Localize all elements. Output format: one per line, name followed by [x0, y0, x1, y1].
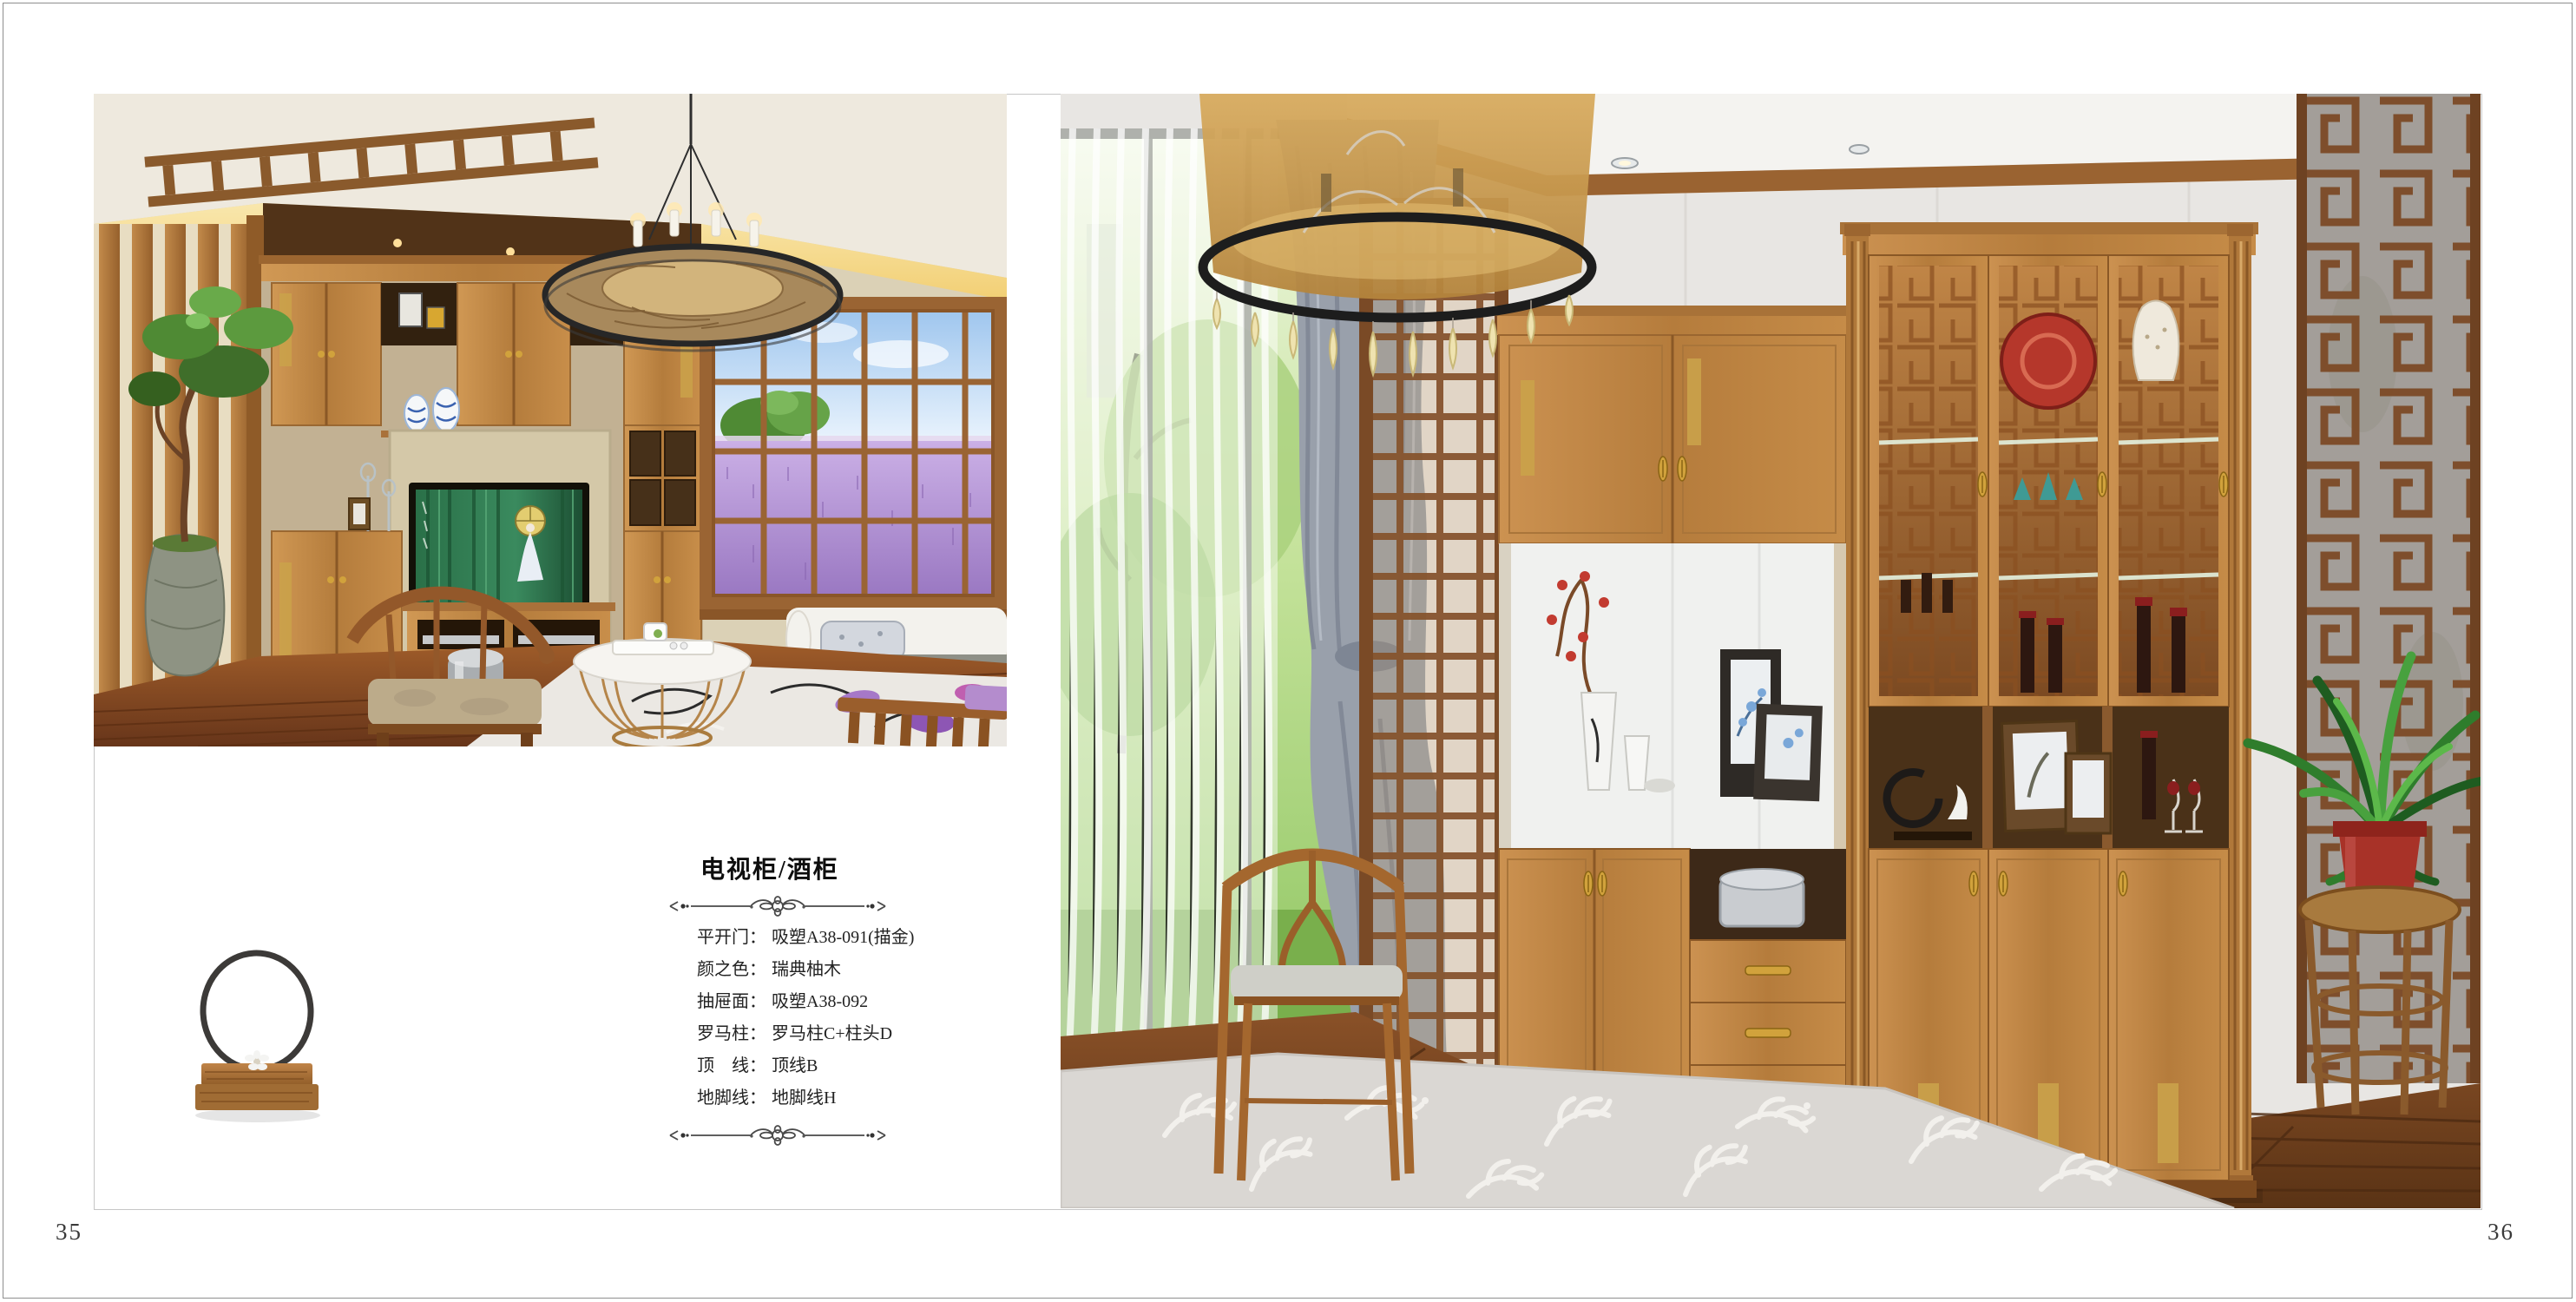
middle-niches — [1869, 707, 2229, 849]
spec-value: 吸塑A38-091(描金) — [772, 928, 914, 947]
spec-label: 罗马柱： — [697, 1024, 766, 1043]
left-room-photo — [94, 94, 1007, 746]
page-number-right: 36 — [2487, 1219, 2514, 1246]
spec-value: 地脚线H — [772, 1088, 836, 1108]
spec-row: 颜之色：瑞典柚木 — [697, 954, 890, 986]
wood-base — [195, 1063, 319, 1110]
right-room-scene — [1061, 94, 2481, 1208]
product-info-block: 电视柜/酒柜 平开门：吸塑A38-091(描金) 颜之色：瑞典柚木 抽屉面：吸塑… — [668, 851, 890, 1146]
spec-row: 罗马柱：罗马柱C+柱头D — [697, 1018, 890, 1050]
spec-value: 吸塑A38-092 — [772, 992, 868, 1011]
window — [700, 297, 1007, 620]
roman-column-right — [2227, 224, 2253, 1189]
spec-row: 抽屉面：吸塑A38-092 — [697, 986, 890, 1018]
decor-object-photo — [184, 942, 332, 1126]
glass-display — [1869, 255, 2229, 707]
decor-object — [184, 942, 332, 1126]
right-section — [1840, 222, 2258, 1189]
spec-row: 地脚线：地脚线H — [697, 1082, 890, 1115]
spec-label: 地脚线： — [697, 1088, 766, 1108]
ornament-divider-top — [668, 896, 887, 917]
left-room-scene — [94, 94, 1007, 746]
object-shadow — [195, 1108, 320, 1122]
spec-list: 平开门：吸塑A38-091(描金) 颜之色：瑞典柚木 抽屉面：吸塑A38-092… — [697, 922, 890, 1115]
spec-label: 平开门： — [697, 928, 766, 947]
spec-value: 罗马柱C+柱头D — [772, 1024, 892, 1043]
spec-value: 顶线B — [772, 1056, 818, 1075]
spec-row: 顶 线：顶线B — [697, 1050, 890, 1082]
spec-value: 瑞典柚木 — [772, 960, 841, 979]
spec-label: 颜之色： — [697, 960, 766, 979]
flower-ornament — [245, 1050, 269, 1070]
right-fretwork-panel — [2297, 94, 2481, 1083]
catalog-spread: 电视柜/酒柜 平开门：吸塑A38-091(描金) 颜之色：瑞典柚木 抽屉面：吸塑… — [0, 0, 2576, 1302]
left-section — [1495, 306, 1852, 1180]
spec-label: 顶 线： — [697, 1056, 766, 1075]
product-title: 电视柜/酒柜 — [700, 851, 890, 885]
right-room-photo — [1061, 94, 2481, 1208]
roman-column-left — [1844, 224, 1870, 1189]
wine-cabinet — [1495, 222, 2258, 1198]
spec-label: 抽屉面： — [697, 992, 766, 1011]
ornament-divider-bottom — [668, 1125, 887, 1146]
spec-row: 平开门：吸塑A38-091(描金) — [697, 922, 890, 954]
display-niche — [1499, 543, 1846, 849]
page-number-left: 35 — [56, 1219, 82, 1246]
